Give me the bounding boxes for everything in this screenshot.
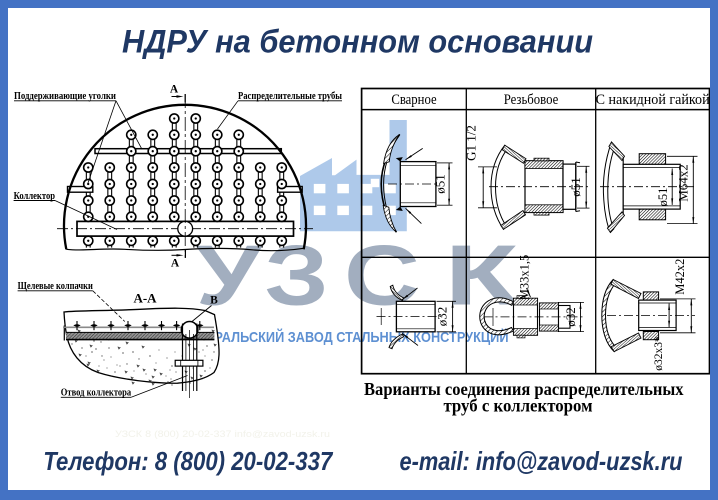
svg-text:ø51: ø51 — [433, 174, 448, 194]
svg-text:В: В — [210, 295, 218, 307]
svg-text:ø32х3*: ø32х3* — [653, 336, 665, 371]
svg-text:e-mail: info@zavod-uzsk.ru: e-mail: info@zavod-uzsk.ru — [400, 446, 683, 476]
svg-text:У: У — [196, 228, 263, 323]
svg-text:Резьбовое: Резьбовое — [504, 92, 559, 108]
svg-text:НДРУ на бетонном основании: НДРУ на бетонном основании — [122, 24, 593, 60]
svg-text:УРАЛЬСКИЙ ЗАВОД СТАЛЬНЫХ КОНСТ: УРАЛЬСКИЙ ЗАВОД СТАЛЬНЫХ КОНСТРУКЦИЙ — [207, 328, 509, 346]
svg-text:Распределительные трубы: Распределительные трубы — [238, 91, 342, 102]
svg-text:ø51: ø51 — [568, 177, 583, 197]
svg-text:А-А: А-А — [133, 291, 157, 306]
svg-text:А: А — [171, 258, 180, 270]
svg-text:G1 1/2: G1 1/2 — [464, 125, 479, 161]
svg-text:Щелевые колпачки: Щелевые колпачки — [18, 281, 93, 292]
svg-text:Сварное: Сварное — [391, 92, 436, 108]
svg-text:З: З — [265, 228, 329, 323]
svg-text:ø32: ø32 — [563, 307, 578, 327]
svg-text:УЗСК 8 (800) 20-02-337 info@: УЗСК 8 (800) 20-02-337 info@zavod-uzsk.r… — [115, 429, 330, 439]
svg-text:труб с коллектором: труб с коллектором — [443, 396, 592, 416]
svg-text:Отвод коллектора: Отвод коллектора — [61, 387, 131, 398]
svg-text:М42х2: М42х2 — [673, 259, 687, 295]
svg-text:С накидной гайкой: С накидной гайкой — [596, 92, 710, 108]
svg-text:М64х2: М64х2 — [675, 164, 690, 202]
svg-text:Телефон: 8 (800) 20-02-337: Телефон: 8 (800) 20-02-337 — [43, 446, 333, 476]
svg-text:ø32: ø32 — [434, 307, 449, 327]
svg-text:Поддерживающие уголки: Поддерживающие уголки — [14, 91, 116, 102]
svg-text:ø51: ø51 — [656, 188, 670, 207]
svg-text:М33х1,5: М33х1,5 — [518, 255, 532, 301]
svg-text:А: А — [170, 84, 179, 96]
